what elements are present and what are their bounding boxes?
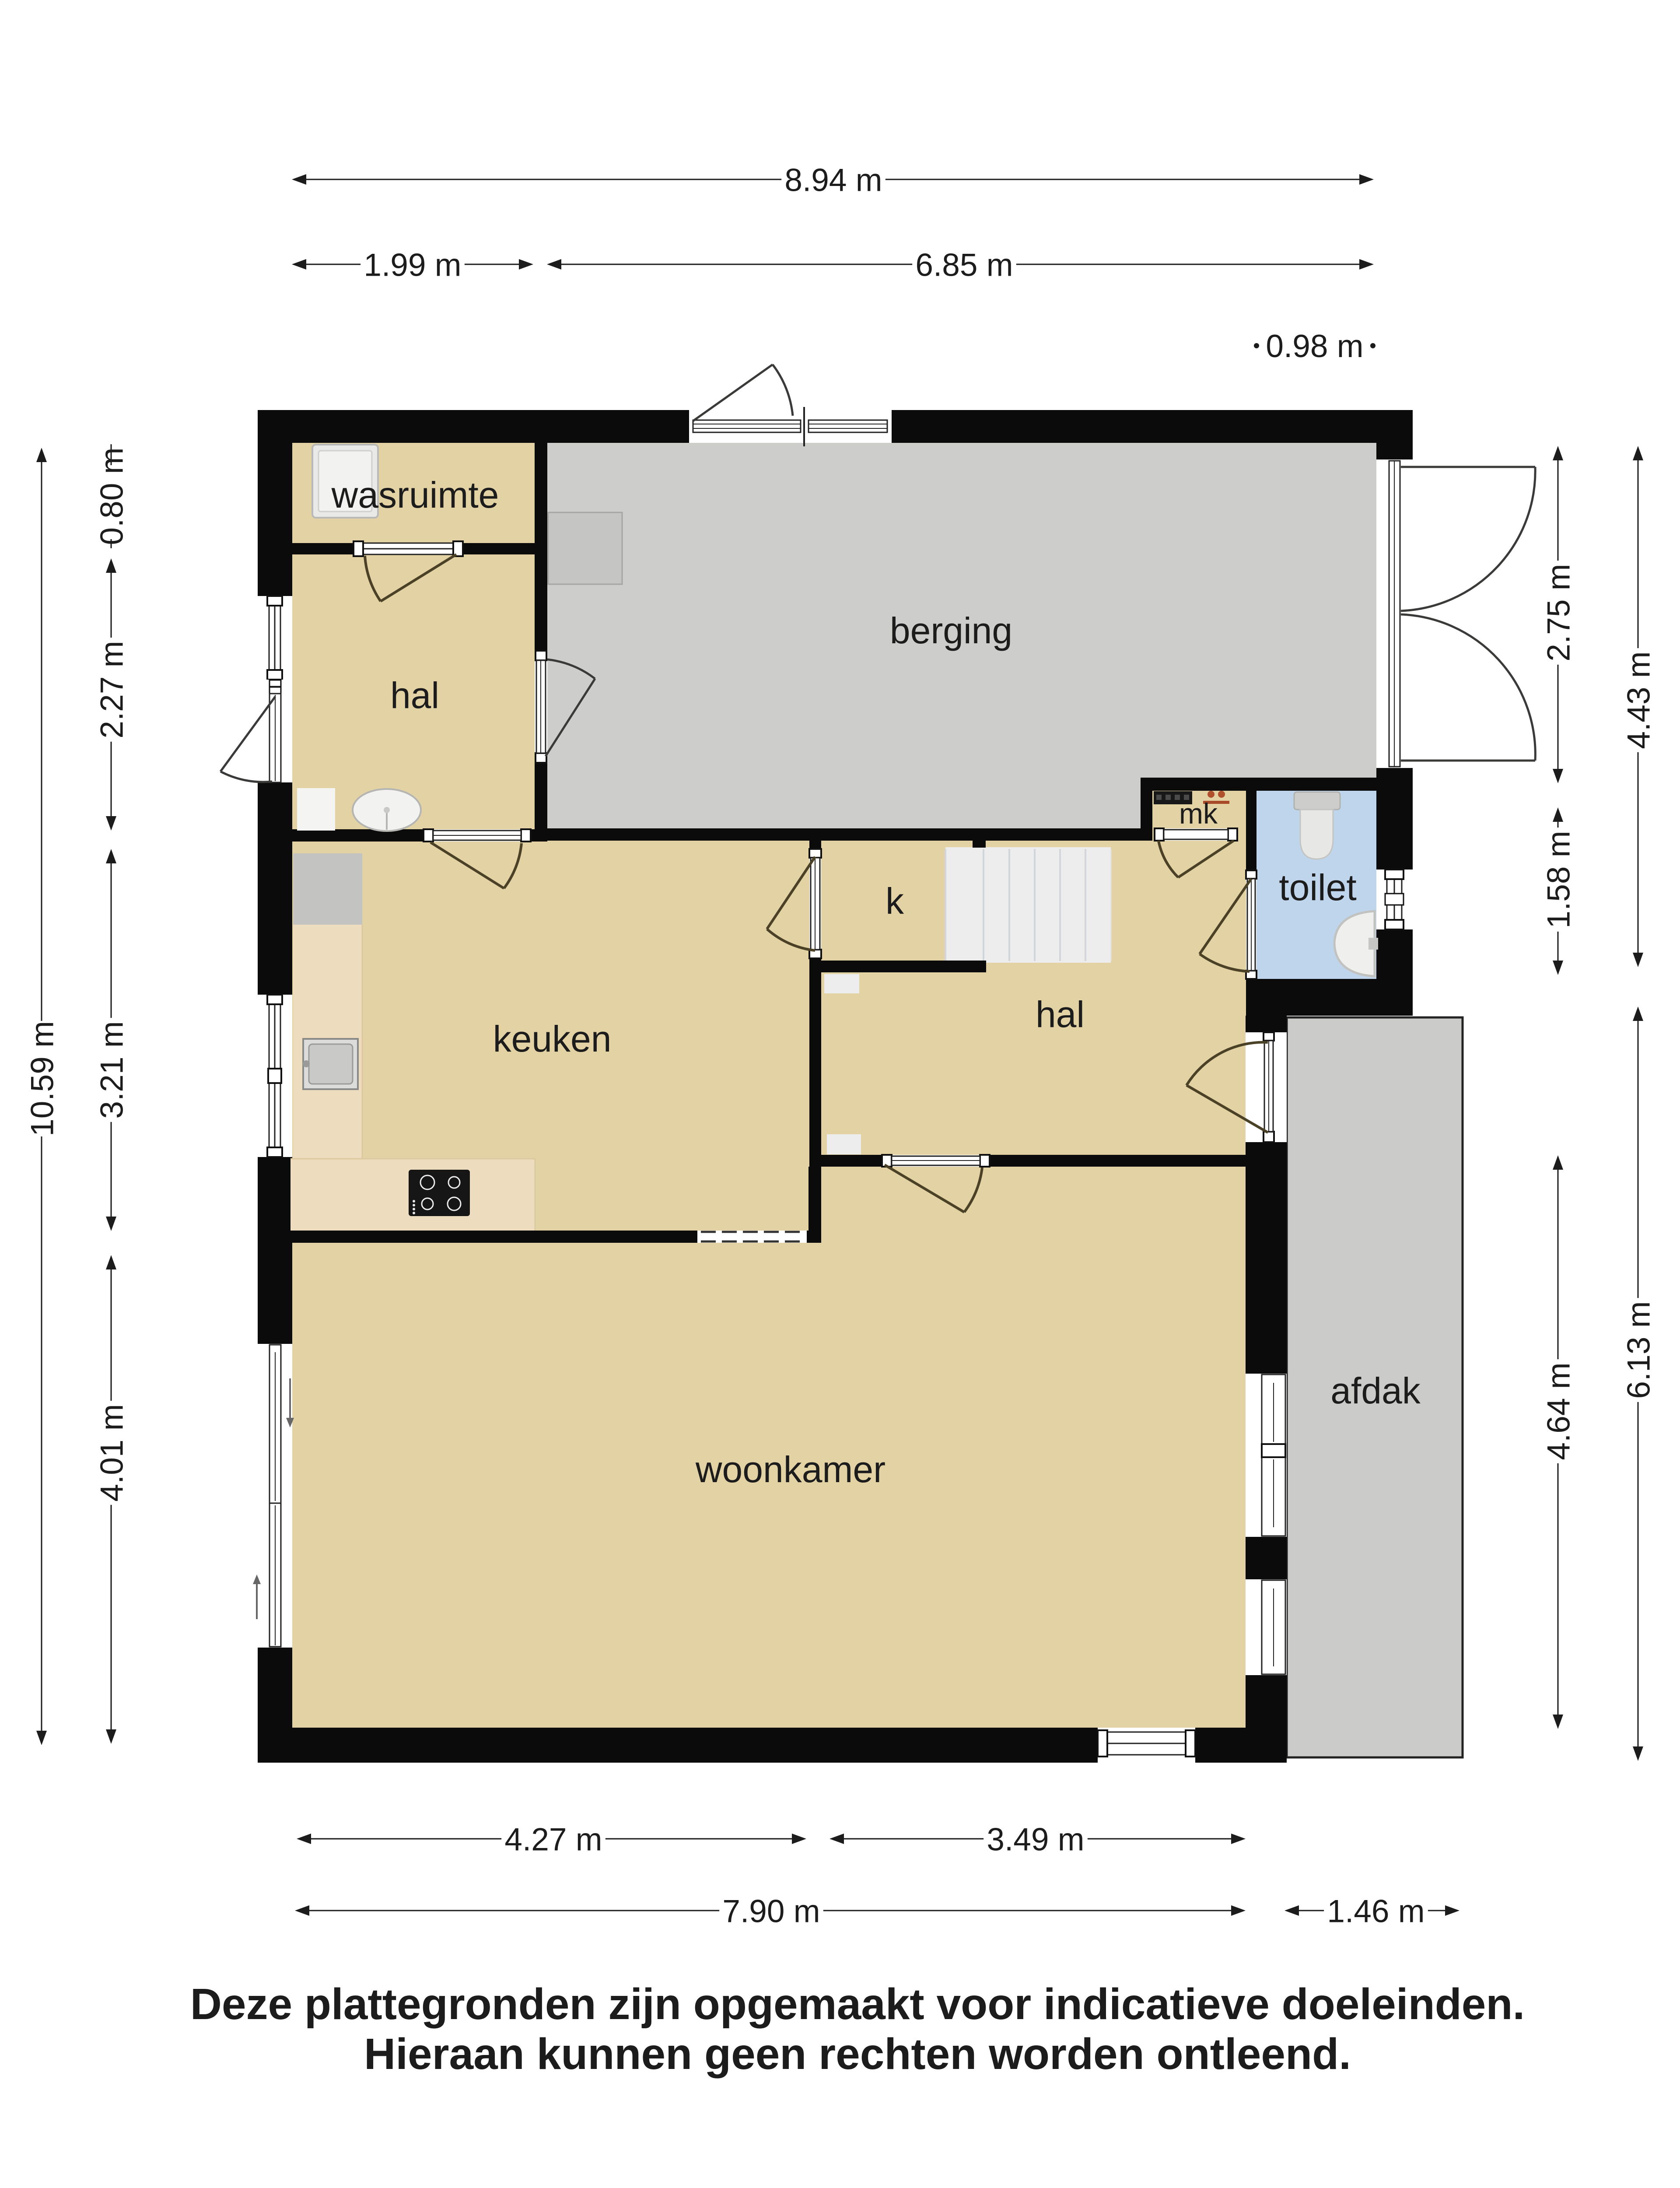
svg-text:4.43 m: 4.43 m xyxy=(1621,651,1656,749)
svg-text:afdak: afdak xyxy=(1330,1370,1421,1411)
svg-text:4.01 m: 4.01 m xyxy=(94,1404,129,1501)
svg-text:wasruimte: wasruimte xyxy=(331,474,499,515)
svg-text:1.58 m: 1.58 m xyxy=(1541,831,1576,928)
svg-text:hal: hal xyxy=(1036,994,1085,1035)
svg-text:7.90 m: 7.90 m xyxy=(722,1893,820,1929)
svg-text:toilet: toilet xyxy=(1279,867,1356,908)
svg-text:Hieraan kunnen geen rechten wo: Hieraan kunnen geen rechten worden ontle… xyxy=(364,2030,1351,2079)
svg-text:berging: berging xyxy=(890,610,1012,651)
svg-text:Deze plattegronden zijn opgema: Deze plattegronden zijn opgemaakt voor i… xyxy=(190,1980,1525,2029)
svg-text:8.94 m: 8.94 m xyxy=(784,162,882,198)
svg-text:6.85 m: 6.85 m xyxy=(915,247,1013,283)
svg-text:0.98 m: 0.98 m xyxy=(1266,329,1363,364)
svg-text:hal: hal xyxy=(390,675,439,716)
svg-text:1.46 m: 1.46 m xyxy=(1327,1893,1424,1929)
svg-text:k: k xyxy=(885,880,904,922)
svg-text:4.27 m: 4.27 m xyxy=(504,1822,602,1857)
svg-text:3.49 m: 3.49 m xyxy=(987,1822,1084,1857)
svg-text:6.13 m: 6.13 m xyxy=(1621,1301,1656,1399)
svg-text:10.59 m: 10.59 m xyxy=(24,1021,60,1136)
svg-text:0.80 m: 0.80 m xyxy=(94,447,129,545)
svg-text:3.21 m: 3.21 m xyxy=(94,1021,129,1119)
svg-text:woonkamer: woonkamer xyxy=(695,1449,885,1490)
svg-text:mk: mk xyxy=(1179,797,1218,830)
svg-text:4.64 m: 4.64 m xyxy=(1541,1362,1576,1460)
svg-text:2.27 m: 2.27 m xyxy=(94,641,129,738)
svg-text:keuken: keuken xyxy=(493,1018,612,1059)
svg-text:2.75 m: 2.75 m xyxy=(1541,564,1576,661)
svg-text:1.99 m: 1.99 m xyxy=(364,247,461,283)
